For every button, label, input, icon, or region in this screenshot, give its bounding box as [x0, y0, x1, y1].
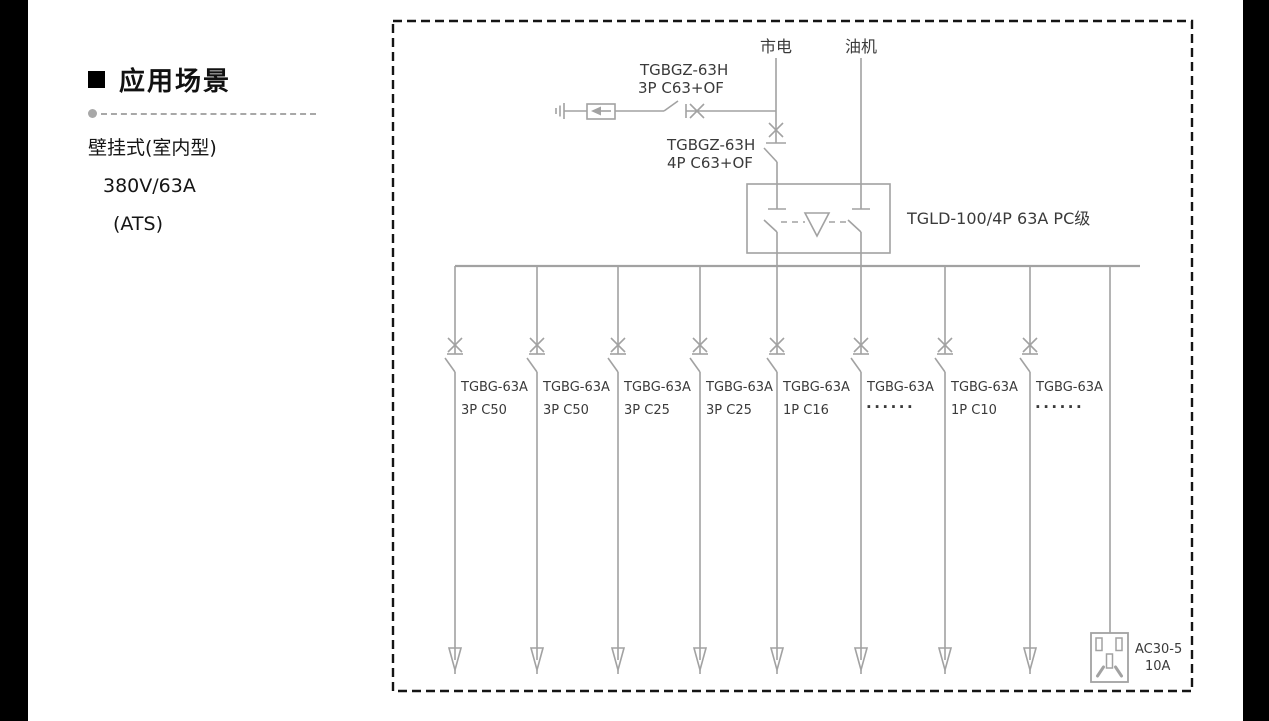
ats-mains-contact	[764, 184, 786, 267]
branch-breaker-blade	[851, 358, 861, 372]
branch-model-label: TGBG-63A	[623, 380, 691, 395]
socket-icon	[1091, 633, 1128, 682]
branch-model-label: TGBG-63A	[1035, 380, 1103, 395]
interlock-triangle-icon	[805, 213, 829, 236]
branch-spec-label: 3P C25	[624, 403, 670, 418]
branch-breaker-blade	[767, 358, 777, 372]
branch-spec-label: 3P C25	[706, 403, 752, 418]
spd-icon	[587, 104, 615, 119]
mains-source-label: 市电	[760, 37, 792, 56]
branches: TGBG-63A3P C50TGBG-63A3P C50TGBG-63A3P C…	[445, 266, 1103, 674]
branch-model-label: TGBG-63A	[866, 380, 934, 395]
main-breaker-blade	[764, 148, 777, 162]
earth-icon	[556, 103, 564, 119]
branch-breaker-blade	[445, 358, 455, 372]
branch-feeder-2: TGBG-63A3P C50	[527, 266, 610, 674]
branch-spec-dots: ······	[866, 398, 915, 416]
branch-model-label: TGBG-63A	[782, 380, 850, 395]
branch-model-label: TGBG-63A	[705, 380, 773, 395]
branch-breaker-blade	[527, 358, 537, 372]
branch-breaker-blade	[690, 358, 700, 372]
branch-spec-label: 1P C10	[951, 403, 997, 418]
spd-breaker-spec-label: 3P C63+OF	[638, 79, 724, 97]
ats-switch: TGLD-100/4P 63A PC级	[747, 184, 1090, 267]
branch-feeder-1: TGBG-63A3P C50	[445, 266, 528, 674]
branch-feeder-8: TGBG-63A······	[1020, 266, 1103, 674]
branch-breaker-blade	[608, 358, 618, 372]
branch-model-label: TGBG-63A	[460, 380, 528, 395]
branch-feeder-6: TGBG-63A······	[851, 266, 934, 674]
branch-feeder-3: TGBG-63A3P C25	[608, 266, 691, 674]
spd-breaker-blade	[664, 101, 678, 111]
ats-generator-contact	[848, 184, 870, 267]
branch-feeder-5: TGBG-63A1P C16	[767, 266, 850, 674]
branch-breaker-blade	[1020, 358, 1030, 372]
diagram-dashed-border	[393, 21, 1192, 691]
socket-rating-label: 10A	[1145, 659, 1171, 674]
branch-breaker-blade	[935, 358, 945, 372]
generator-source-label: 油机	[845, 37, 877, 56]
single-line-diagram: 市电 TGBGZ-63H 4P C63+OF 油机	[0, 0, 1269, 721]
branch-spec-dots: ······	[1035, 398, 1084, 416]
ats-box	[747, 184, 890, 253]
branch-feeder-7: TGBG-63A1P C10	[935, 266, 1018, 674]
socket-model-label: AC30-5	[1135, 642, 1182, 657]
branch-model-label: TGBG-63A	[542, 380, 610, 395]
socket-feeder: AC30-5 10A	[1091, 266, 1182, 682]
branch-model-label: TGBG-63A	[950, 380, 1018, 395]
branch-spec-label: 1P C16	[783, 403, 829, 418]
main-breaker-spec-label: 4P C63+OF	[667, 154, 753, 172]
spd-breaker-model-label: TGBGZ-63H	[639, 61, 728, 79]
branch-spec-label: 3P C50	[543, 403, 589, 418]
spd-branch: TGBGZ-63H 3P C63+OF	[556, 61, 776, 119]
generator-feeder: 油机	[845, 37, 877, 184]
ats-label: TGLD-100/4P 63A PC级	[906, 209, 1090, 228]
branch-feeder-4: TGBG-63A3P C25	[690, 266, 773, 674]
branch-spec-label: 3P C50	[461, 403, 507, 418]
main-breaker-model-label: TGBGZ-63H	[666, 136, 755, 154]
